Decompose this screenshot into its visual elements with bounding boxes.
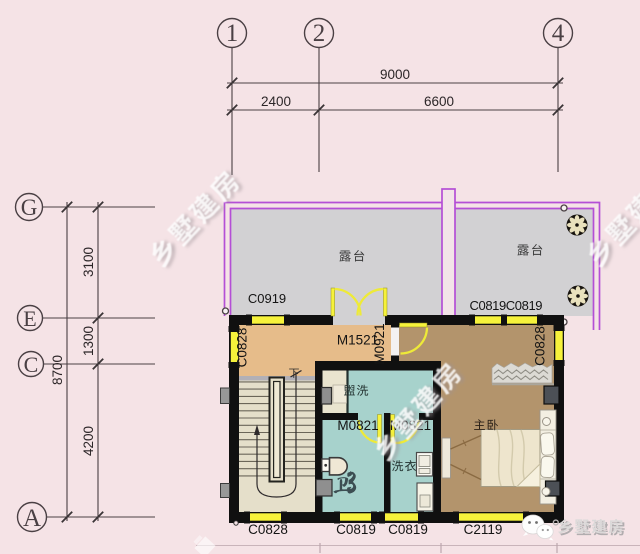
svg-text:M0821: M0821 [337, 418, 378, 433]
svg-text:2: 2 [313, 20, 326, 47]
svg-text:2400: 2400 [261, 94, 291, 109]
svg-text:G: G [21, 195, 38, 220]
svg-text:E: E [23, 306, 36, 331]
svg-text:C0828: C0828 [533, 326, 548, 366]
svg-text:8700: 8700 [50, 355, 65, 385]
svg-text:C0819: C0819 [388, 522, 428, 537]
svg-text:C0819: C0819 [336, 522, 376, 537]
svg-text:3100: 3100 [81, 247, 96, 277]
svg-text:C: C [24, 352, 39, 377]
svg-text:C0828: C0828 [235, 328, 250, 368]
svg-text:1300: 1300 [81, 326, 96, 356]
svg-text:C0828: C0828 [248, 522, 288, 537]
svg-text:M0921: M0921 [372, 323, 387, 364]
svg-text:C0819C0819: C0819C0819 [470, 298, 543, 313]
svg-text:6600: 6600 [424, 94, 454, 109]
svg-text:4: 4 [552, 20, 565, 47]
svg-text:4200: 4200 [81, 426, 96, 456]
svg-text:C2119: C2119 [464, 522, 503, 537]
svg-text:A: A [23, 505, 41, 532]
svg-text:1: 1 [226, 20, 239, 47]
svg-text:9000: 9000 [380, 67, 410, 82]
svg-text:C0919: C0919 [248, 291, 286, 306]
